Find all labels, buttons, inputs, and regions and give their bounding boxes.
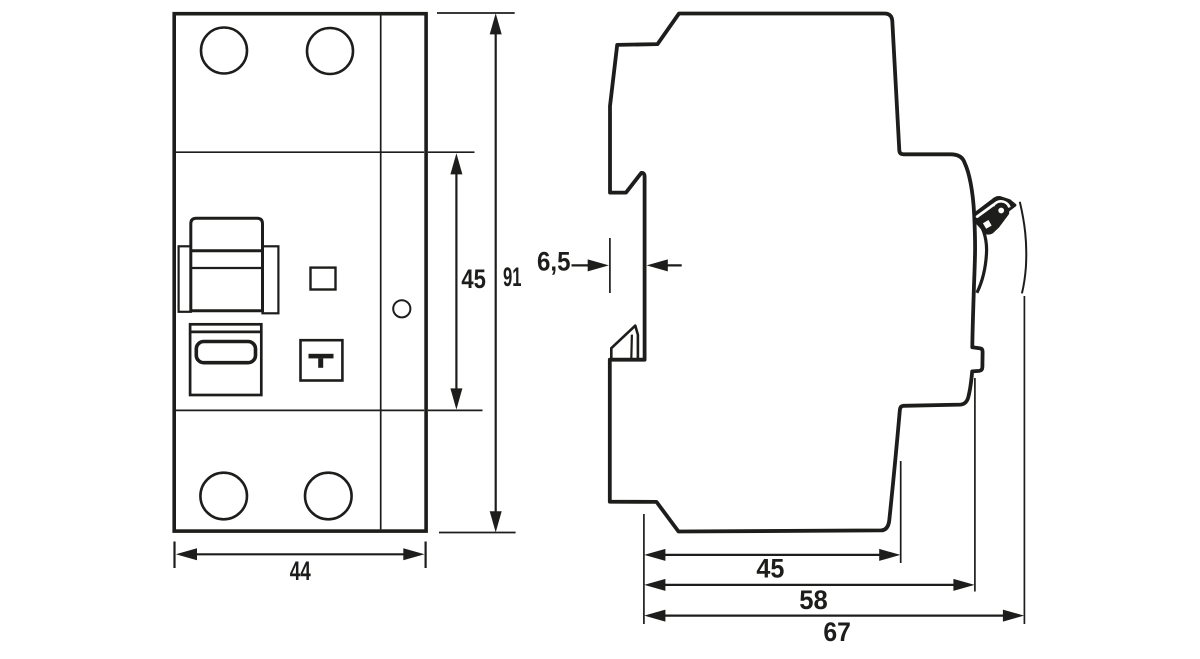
svg-text:67: 67 xyxy=(823,617,851,647)
svg-text:6,5: 6,5 xyxy=(537,247,571,277)
svg-text:91: 91 xyxy=(503,262,522,292)
svg-text:45: 45 xyxy=(756,553,784,583)
svg-text:45: 45 xyxy=(461,264,486,294)
svg-text:58: 58 xyxy=(799,585,828,615)
svg-text:44: 44 xyxy=(290,556,311,586)
